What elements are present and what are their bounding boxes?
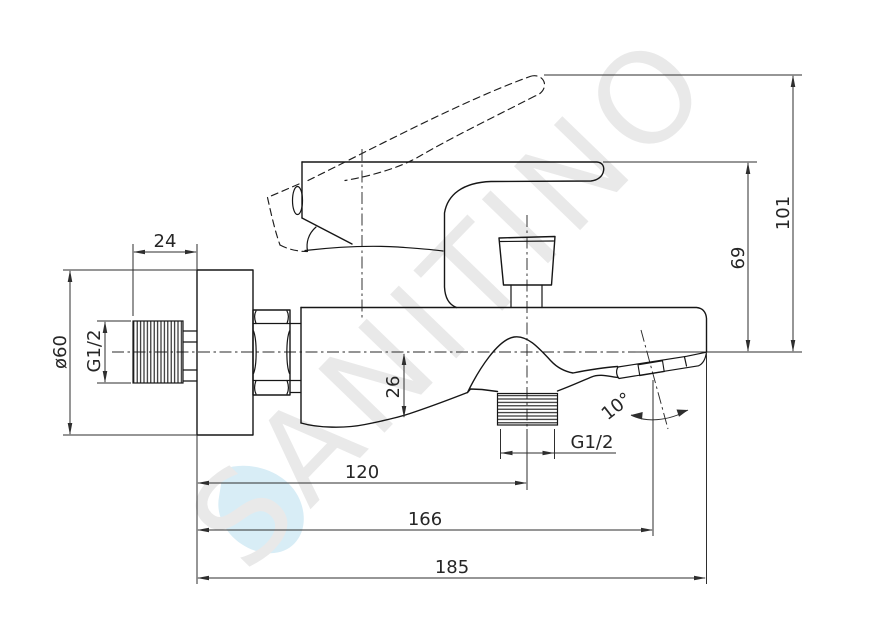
technical-drawing-page: SANITINO bbox=[0, 0, 873, 630]
bath-mixer-dimension-drawing: SANITINO bbox=[0, 0, 873, 630]
spout-underside-right bbox=[558, 375, 619, 391]
lever-raised-tip bbox=[530, 76, 545, 96]
lever-raised-heel-2 bbox=[268, 198, 281, 246]
dim-eccentric-length: 24 bbox=[133, 231, 197, 316]
dim-spout-angle: 10° bbox=[598, 380, 688, 536]
diverter-knob-cap-line bbox=[501, 241, 554, 242]
dim-label-g12-inlet: G1/2 bbox=[84, 330, 105, 373]
lever-raised-heel-arc bbox=[280, 245, 308, 252]
dim-label-26: 26 bbox=[383, 376, 404, 399]
dim-label-dia60: ø60 bbox=[50, 335, 71, 369]
head-taper bbox=[302, 218, 352, 244]
dim-label-120: 120 bbox=[345, 462, 379, 483]
dim-shower-outlet-thread: G1/2 bbox=[501, 429, 617, 459]
dim-label-g12-outlet: G1/2 bbox=[571, 432, 614, 453]
centerline-aerator-axis bbox=[641, 330, 668, 429]
lever-hub-arc bbox=[307, 227, 316, 251]
dim-label-10deg: 10° bbox=[598, 389, 636, 425]
dim-label-166: 166 bbox=[408, 509, 442, 530]
inlet-thread-body bbox=[133, 321, 183, 383]
aerator bbox=[617, 352, 707, 378]
dim-24-extension bbox=[133, 244, 197, 316]
dim-label-69: 69 bbox=[728, 247, 749, 270]
shower-outlet-thread bbox=[498, 394, 558, 426]
eccentric-stub bbox=[183, 331, 197, 381]
aerator-divider bbox=[685, 357, 687, 366]
dim-label-24: 24 bbox=[154, 231, 177, 252]
dim-label-101: 101 bbox=[773, 196, 794, 230]
aerator-top-edge bbox=[618, 352, 707, 367]
lever-end-cap bbox=[293, 187, 303, 215]
dim-label-185: 185 bbox=[435, 557, 469, 578]
